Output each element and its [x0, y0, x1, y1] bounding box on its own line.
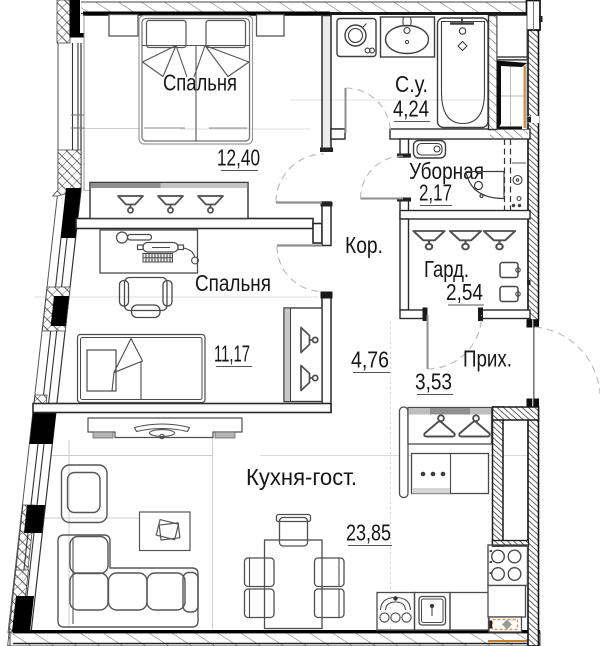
svg-text:4,24: 4,24 — [393, 96, 429, 122]
svg-text:11,17: 11,17 — [214, 341, 250, 367]
svg-text:Кухня-гост.: Кухня-гост. — [246, 464, 357, 490]
svg-text:23,85: 23,85 — [346, 520, 391, 546]
svg-text:2,54: 2,54 — [446, 279, 483, 305]
svg-text:Прих.: Прих. — [463, 346, 512, 372]
svg-text:4,76: 4,76 — [351, 347, 389, 373]
svg-text:Кор.: Кор. — [345, 232, 383, 258]
svg-text:Спальня: Спальня — [195, 270, 271, 296]
svg-text:2,17: 2,17 — [419, 180, 452, 206]
svg-text:12,40: 12,40 — [217, 145, 260, 171]
svg-text:3,53: 3,53 — [415, 369, 452, 395]
svg-text:С.у.: С.у. — [395, 71, 428, 97]
